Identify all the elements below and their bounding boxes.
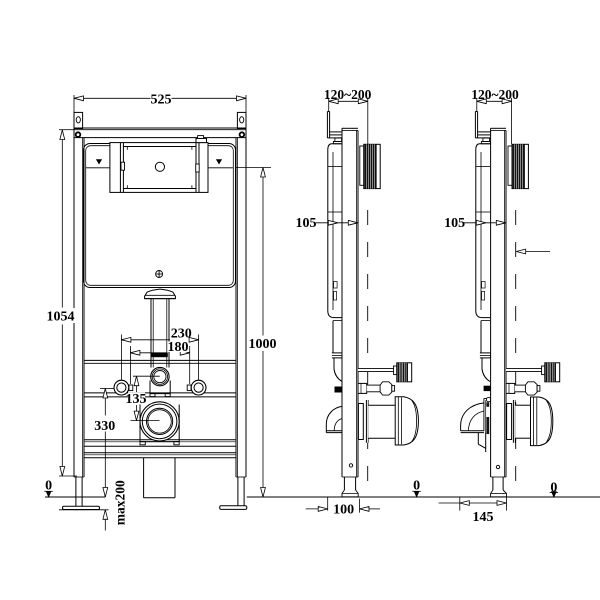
svg-text:120~200: 120~200 <box>471 87 519 102</box>
svg-text:145: 145 <box>473 510 494 525</box>
svg-text:1000: 1000 <box>249 337 277 352</box>
svg-text:0: 0 <box>550 481 557 496</box>
svg-text:100: 100 <box>333 503 354 518</box>
svg-text:180: 180 <box>168 340 189 355</box>
svg-text:525: 525 <box>151 92 172 107</box>
svg-text:120~200: 120~200 <box>324 87 372 102</box>
svg-text:105: 105 <box>296 216 317 231</box>
svg-text:max200: max200 <box>112 480 127 525</box>
svg-text:0: 0 <box>45 479 52 494</box>
svg-text:0: 0 <box>413 479 420 494</box>
svg-text:1054: 1054 <box>47 309 75 324</box>
svg-text:135: 135 <box>126 392 147 407</box>
svg-text:330: 330 <box>94 419 115 434</box>
svg-text:105: 105 <box>444 216 465 231</box>
